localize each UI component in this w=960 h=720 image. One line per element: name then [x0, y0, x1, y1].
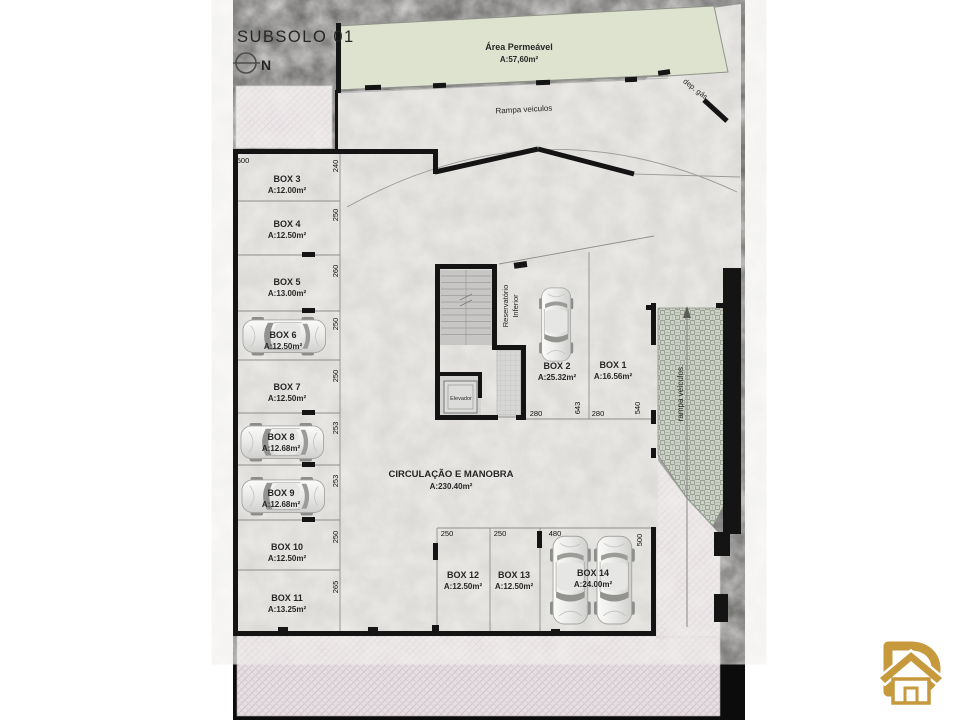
box-2-title: BOX 2 [543, 361, 570, 371]
dim-left-3: 250 [331, 318, 340, 331]
dim-left-6: 253 [331, 475, 340, 488]
box-7-title: BOX 7 [273, 382, 300, 392]
box-2-area: A:25.32m² [538, 373, 577, 382]
elevador-label: Elevador [450, 396, 472, 402]
dim-core-3: 540 [633, 402, 642, 415]
north-label: N [261, 57, 271, 73]
dim-left-4: 250 [331, 370, 340, 383]
floorplan-drawing: Área Permeável A:57,60m² Rampa veiculos … [0, 0, 960, 720]
box-11-title: BOX 11 [271, 593, 303, 603]
box-12-area: A:12.50m² [444, 582, 483, 591]
box-5-title: BOX 5 [273, 277, 300, 287]
reservatorio-line2: Inferior [511, 294, 520, 318]
dim-bottom-0: 250 [441, 529, 454, 538]
box-3-title: BOX 3 [273, 174, 300, 184]
car-box2 [539, 288, 573, 361]
box-14-title: BOX 14 [577, 568, 609, 578]
dim-left-7: 250 [331, 531, 340, 544]
reservatorio-line1: Reservatório [501, 285, 510, 328]
car-box8 [241, 423, 324, 461]
box-11-area: A:13.25m² [268, 605, 307, 614]
dim-bottom-1: 250 [494, 529, 507, 538]
box-3-area: A:12.00m² [268, 186, 307, 195]
box-1-area: A:16.56m² [594, 372, 633, 381]
dim-bottom-2: 480 [549, 529, 562, 538]
box-5-area: A:13.00m² [268, 289, 307, 298]
box-4-title: BOX 4 [273, 219, 300, 229]
dim-left-width: 500 [237, 156, 250, 165]
dim-core-1: 643 [573, 402, 582, 415]
dim-bottom-height: 500 [635, 534, 644, 547]
dim-left-1: 250 [331, 209, 340, 222]
dim-left-5: 253 [331, 422, 340, 435]
page-title: SUBSOLO 01 [237, 28, 355, 46]
box-9-area: A:12.68m² [262, 500, 301, 509]
box-8-area: A:12.68m² [262, 444, 301, 453]
dim-core-2: 280 [592, 409, 605, 418]
dim-left-8: 265 [331, 581, 340, 594]
dim-core-0: 280 [530, 409, 543, 418]
box-8-title: BOX 8 [267, 432, 294, 442]
permeable-name: Área Permeável [485, 42, 553, 52]
box-10-title: BOX 10 [271, 542, 303, 552]
floorplan-page: Área Permeável A:57,60m² Rampa veiculos … [0, 0, 960, 720]
box-4-area: A:12.50m² [268, 231, 307, 240]
box-10-area: A:12.50m² [268, 554, 307, 563]
circulacao-name: CIRCULAÇÃO E MANOBRA [388, 469, 513, 480]
circulacao-area: A:230.40m² [430, 482, 473, 491]
box-9-title: BOX 9 [267, 488, 294, 498]
permeable-area-value: A:57,60m² [500, 55, 539, 64]
box-6-title: BOX 6 [269, 330, 296, 340]
box-14-area: A:24.00m² [574, 580, 613, 589]
box-12-title: BOX 12 [447, 570, 479, 580]
box-1-title: BOX 1 [599, 360, 626, 370]
dim-left-2: 260 [331, 265, 340, 278]
box-7-area: A:12.50m² [268, 394, 307, 403]
box-6-area: A:12.50m² [264, 342, 303, 351]
ramp-right-label: rampa veículos. [676, 365, 685, 421]
box-13-area: A:12.50m² [495, 582, 534, 591]
box-13-title: BOX 13 [498, 570, 530, 580]
dim-left-0: 240 [331, 160, 340, 173]
